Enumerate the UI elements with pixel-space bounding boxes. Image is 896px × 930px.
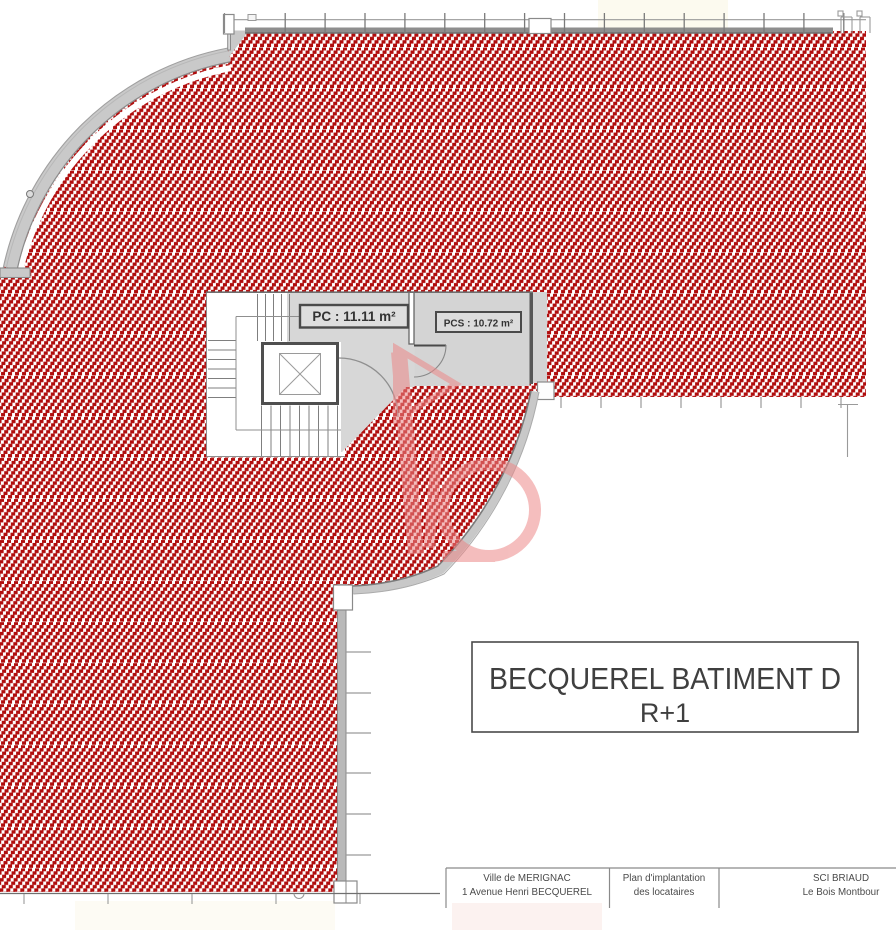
svg-text:SCI BRIAUD: SCI BRIAUD <box>813 873 869 884</box>
svg-text:Le Bois Montbour: Le Bois Montbour <box>803 887 881 898</box>
svg-text:1 Avenue Henri BECQUEREL: 1 Avenue Henri BECQUEREL <box>462 887 593 898</box>
svg-text:Plan d'implantation: Plan d'implantation <box>623 873 705 884</box>
svg-text:R+1: R+1 <box>640 698 690 728</box>
svg-text:BECQUEREL BATIMENT D: BECQUEREL BATIMENT D <box>489 661 841 696</box>
svg-text:Ville de MERIGNAC: Ville de MERIGNAC <box>483 873 570 884</box>
svg-text:PCS : 10.72 m²: PCS : 10.72 m² <box>444 319 514 330</box>
svg-text:des locataires: des locataires <box>634 887 695 898</box>
svg-text:PC : 11.11 m²: PC : 11.11 m² <box>312 309 396 324</box>
